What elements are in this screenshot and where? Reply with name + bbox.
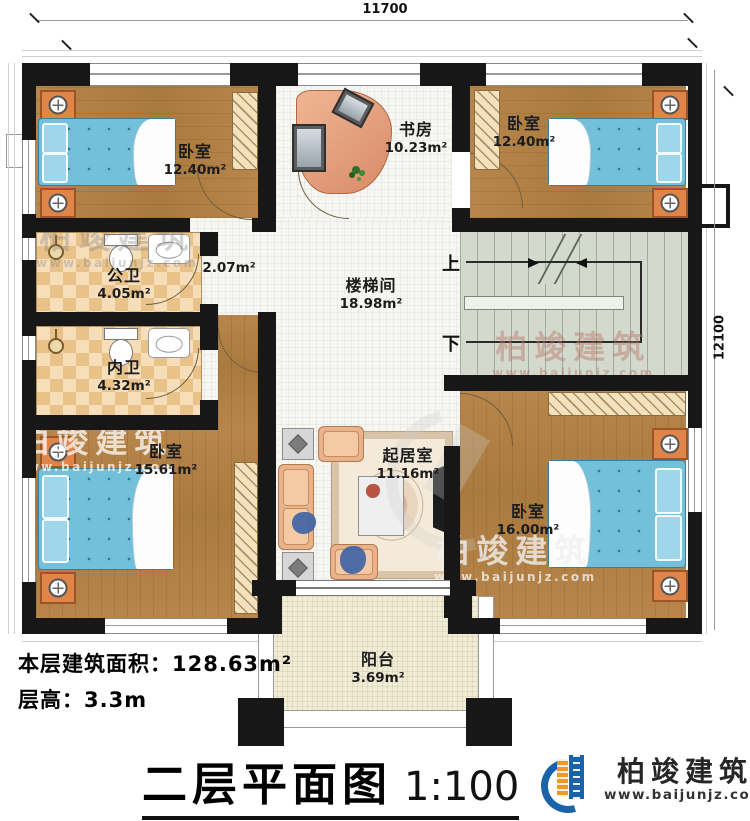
window [105,618,227,634]
room-label-balcony: 阳台 3.69m² [328,650,428,687]
dimension-tick [683,13,694,24]
room-name: 卧室 [178,142,212,162]
balcony-sliding-door [296,580,450,596]
floor-area-line: 本层建筑面积：128.63m² [18,648,292,678]
sill-line [706,63,707,634]
stair-up-label: 上 [442,250,460,276]
dimension-tick [29,13,40,24]
window [298,63,420,86]
room-label-bedroom-tr: 卧室 12.40m² [478,114,570,151]
room-area: 4.05m² [97,286,150,303]
sink [148,234,190,264]
room-label-bedroom-tl: 卧室 12.40m² [147,142,243,179]
wall [452,218,702,232]
room-area: 4.32m² [97,378,150,395]
shower-head [48,338,64,354]
wall [22,415,218,430]
cushion [283,469,309,506]
stair-walk-line-up [466,261,640,263]
room-area: 16.00m² [497,522,560,539]
nightstand [40,90,76,120]
floor-plan: 上 下 柏竣建筑 www.baijunjz.com 柏竣建筑 www.baiju… [0,0,750,821]
room-label-study: 书房 10.23m² [368,120,464,157]
window [486,63,642,86]
room-label-living: 起居室 11.16m² [360,446,456,483]
room-name: 阳台 [361,650,395,670]
balcony-railing-bottom [258,710,494,728]
corner-tick [687,38,698,49]
room-label-public-bath: 公卫 4.05m² [74,266,174,303]
balcony-pier [466,698,512,746]
pillow [656,123,682,154]
pillow [655,468,682,514]
stair-walk-line-down [466,341,640,343]
pillow [655,515,682,561]
window [688,428,702,512]
sill-line [22,50,702,51]
cushion [323,431,359,457]
stair-handrail [464,296,624,310]
brand-website: www.baijunjz.com [604,787,750,803]
logo-tower-orange [557,759,568,797]
wall [258,63,276,232]
corner-tick [61,40,72,51]
window [500,618,646,634]
wall [258,592,282,634]
room-name: 书房 [399,120,433,140]
window [22,238,36,260]
logo-tower-blue [569,755,584,799]
arrow-right-icon [528,258,539,268]
pillow [42,519,69,563]
room-label-bedroom-br: 卧室 16.00m² [480,502,576,539]
floor-area-label: 本层建筑面积： [18,652,172,676]
dimension-width: 11700 [345,2,425,17]
bed [38,468,174,570]
room-area: 12.40m² [164,162,227,179]
wardrobe [548,392,686,416]
window [22,478,36,582]
room-area: 15.61m² [135,462,198,479]
ac-platform [700,184,730,228]
pillow [42,123,68,154]
plan-title: 二层平面图 1:100 [142,748,519,820]
room-area: 18.98m² [340,296,403,313]
wall [22,312,218,326]
floor-area-value: 128.63m² [172,652,292,676]
nightstand [652,188,688,218]
room-name: 卧室 [507,114,541,134]
brand-logo-icon [540,752,596,808]
blanket [132,469,173,569]
shower-head [48,244,64,260]
floor-height-line: 层高：3.3m [18,684,147,714]
sink [148,328,190,358]
sill-line [14,63,15,634]
brand-text: 柏竣建筑 www.baijunjz.com [604,757,750,804]
brand-logo: 柏竣建筑 www.baijunjz.com [540,752,750,808]
room-name: 内卫 [107,358,141,378]
arrow-left-icon [576,258,587,268]
wall [22,218,190,232]
nightstand [652,428,688,460]
dimension-height: 12100 [713,308,728,368]
wall [258,312,276,618]
room-name: 卧室 [149,442,183,462]
dimension-line-top [36,20,688,21]
balcony-pier [238,698,284,746]
pillow [42,153,68,183]
sill-line [22,641,282,642]
room-area: 3.69m² [351,670,404,687]
sill-line [8,63,9,634]
room-label-bedroom-bl: 卧室 15.61m² [118,442,214,479]
nightstand [652,90,688,120]
nightstand [40,436,76,468]
sill-line [22,56,702,57]
armchair [318,426,364,462]
room-label-hallway: 2.07m² [200,260,258,277]
pillow [656,153,682,183]
window [90,63,230,86]
floor-height-value: 3.3m [84,688,147,712]
side-table [282,428,314,460]
nightstand [40,572,76,604]
wall [444,375,702,391]
plant [352,166,360,174]
room-label-private-bath: 内卫 4.32m² [74,358,174,395]
room-name: 卧室 [511,502,545,522]
room-label-stair-hall: 楼梯间 18.98m² [316,276,426,313]
floor-height-label: 层高： [18,688,84,712]
room-area: 2.07m² [202,260,255,277]
plan-scale: 1:100 [404,764,519,810]
wall [200,232,218,256]
room-name: 楼梯间 [345,276,396,296]
pillow [42,475,69,519]
stair-walk-line-turn [640,261,642,343]
window [22,336,36,360]
stair-down-label: 下 [442,330,460,356]
corner-tick [723,86,734,97]
nightstand [652,570,688,602]
room-area: 11.16m² [377,466,440,483]
wall [688,63,702,634]
wall [200,304,218,350]
wall [252,218,276,232]
window [22,140,36,214]
plan-title-text: 二层平面图 [142,748,392,813]
room-name: 公卫 [107,266,141,286]
sofa [278,464,314,550]
room-name: 起居室 [382,446,433,466]
room-area: 12.40m² [493,134,556,151]
brand-name: 柏竣建筑 [617,757,750,788]
computer-monitor [292,124,326,172]
room-area: 10.23m² [385,140,448,157]
nightstand [40,188,76,218]
